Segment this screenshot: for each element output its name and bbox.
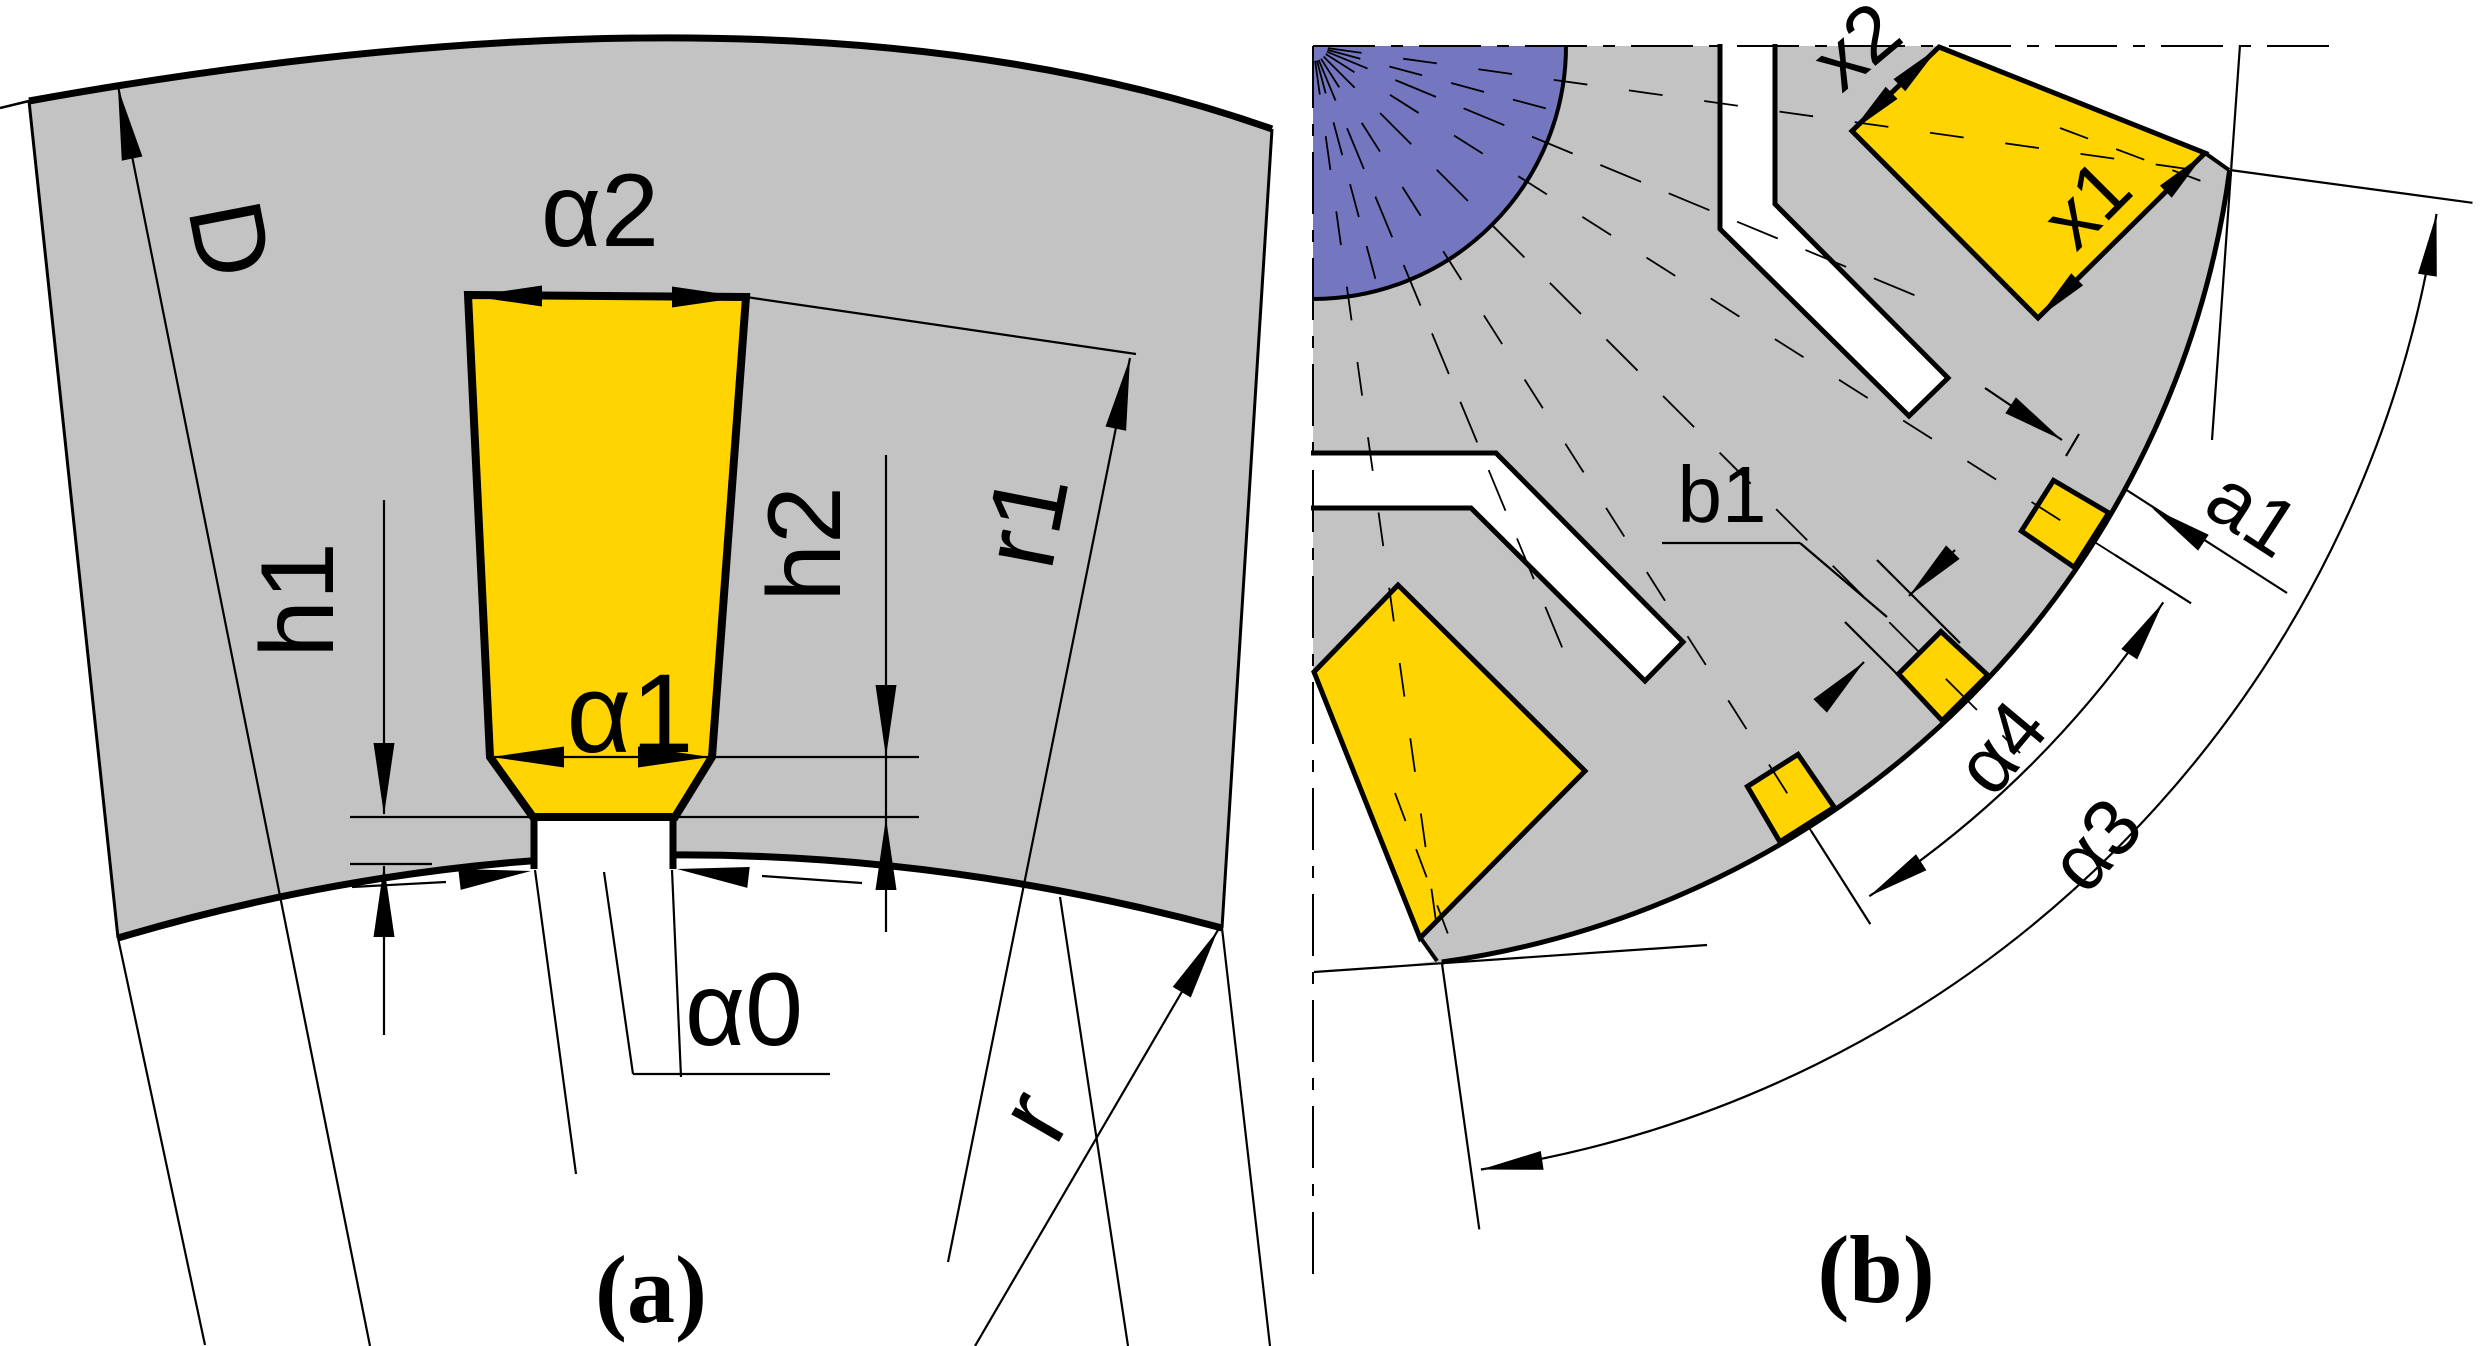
svg-text:α2: α2 bbox=[541, 153, 659, 269]
svg-text:b1: b1 bbox=[1678, 450, 1767, 539]
svg-text:(a): (a) bbox=[595, 1236, 707, 1343]
svg-text:h2: h2 bbox=[747, 486, 863, 602]
svg-text:h1: h1 bbox=[240, 542, 356, 658]
svg-text:(b): (b) bbox=[1817, 1216, 1934, 1323]
svg-text:α0: α0 bbox=[685, 952, 803, 1068]
svg-text:α1: α1 bbox=[566, 651, 693, 776]
